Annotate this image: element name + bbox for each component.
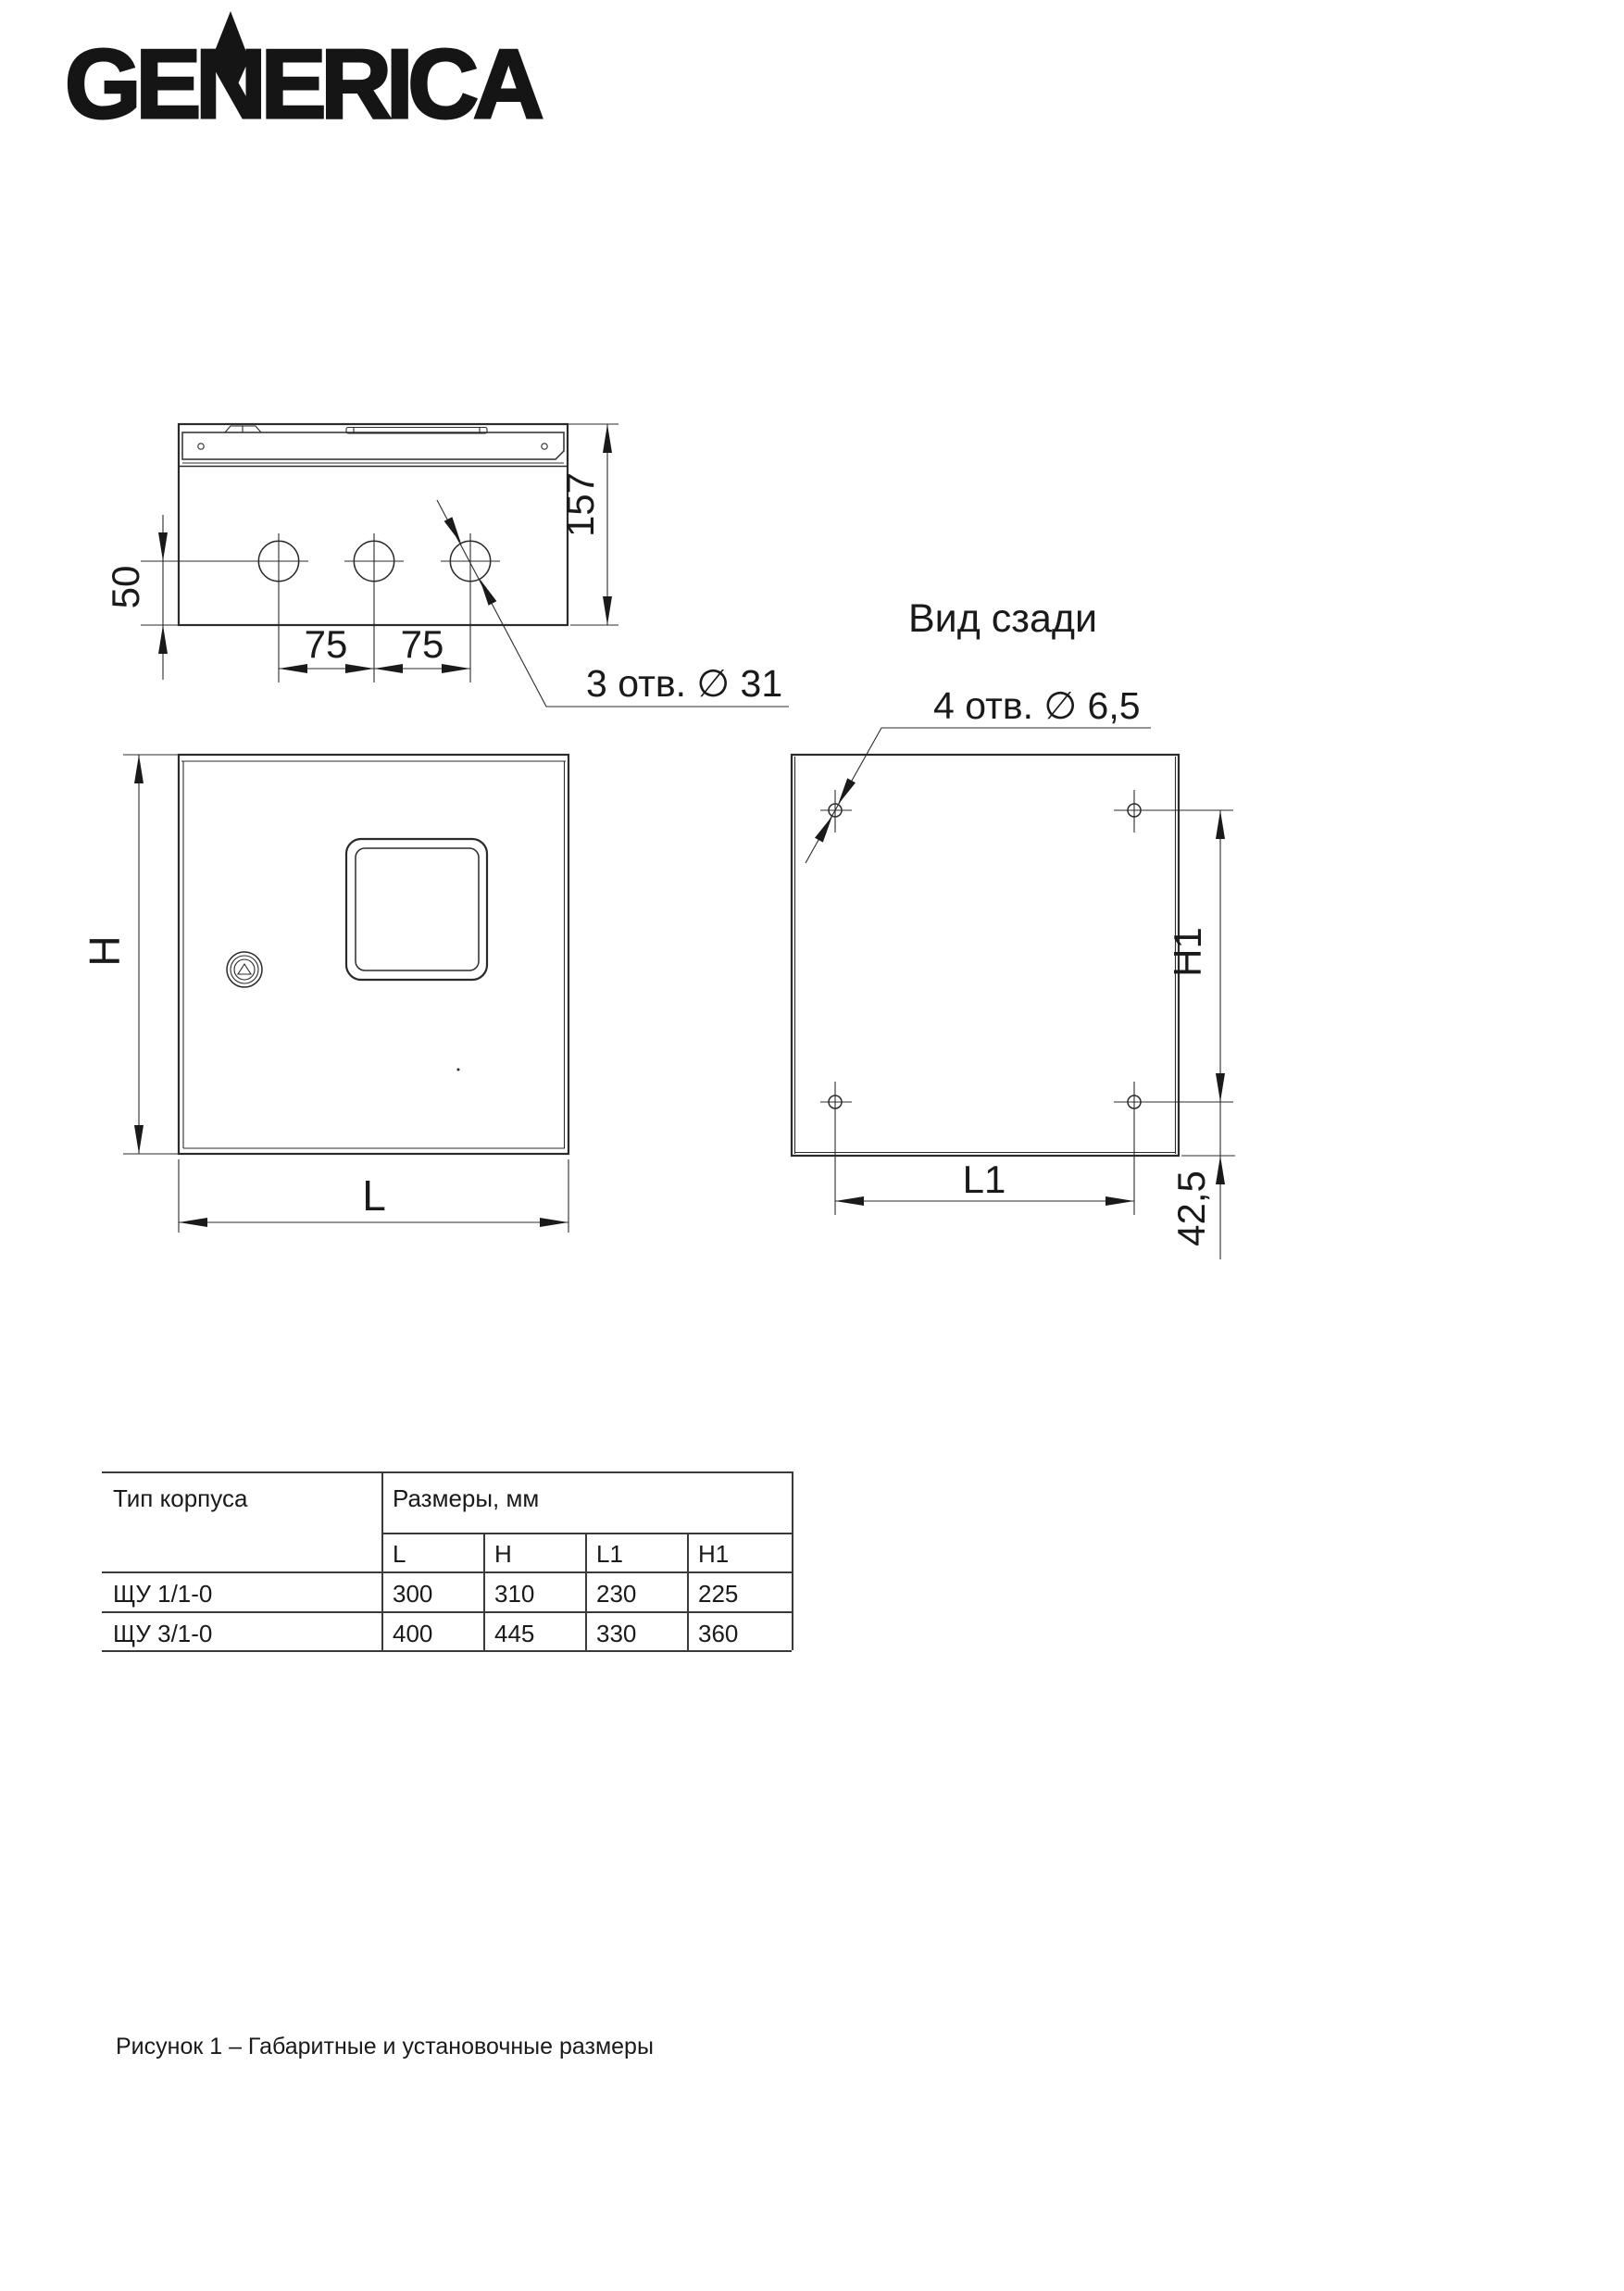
top-holes-label: 3 отв. ∅ 31 (586, 662, 782, 705)
rear-holes-label: 4 отв. ∅ 6,5 (933, 684, 1141, 727)
leader-3-holes: 3 отв. ∅ 31 (437, 500, 789, 707)
dimension-H1: H1 (1166, 810, 1225, 1102)
rear-view-outline (792, 755, 1179, 1156)
dim-42-5-label: 42,5 (1169, 1171, 1213, 1246)
table-row-type: ЩУ 3/1-0 (113, 1620, 212, 1648)
top-view: 157 50 75 75 3 отв. ∅ 31 (104, 424, 789, 707)
leader-4-holes: 4 отв. ∅ 6,5 (806, 684, 1151, 863)
figure-caption: Рисунок 1 – Габаритные и установочные ра… (116, 2034, 654, 2060)
table-cell: 230 (596, 1580, 636, 1609)
technical-drawing: 157 50 75 75 3 отв. ∅ 31 (0, 0, 1624, 1315)
table-col-H: H (494, 1540, 512, 1569)
dimension-L1: L1 (835, 1158, 1134, 1206)
dim-spacing2-label: 75 (401, 622, 444, 666)
dim-H-label: H (81, 935, 129, 966)
top-view-body-outline (179, 424, 568, 625)
rear-view: Вид сзади 4 отв. ∅ 6,5 (792, 596, 1235, 1259)
table-cell: 310 (494, 1580, 534, 1609)
dim-L-label: L (362, 1171, 386, 1220)
dim-depth-label: 157 (558, 472, 602, 537)
dim-spacing1-label: 75 (305, 622, 348, 666)
rear-view-title: Вид сзади (908, 596, 1097, 641)
top-view-lid-panel (182, 432, 564, 459)
table-cell: 225 (698, 1580, 738, 1609)
top-view-screw-left (198, 444, 204, 449)
dim-H1-label: H1 (1166, 927, 1209, 977)
table-cell: 300 (393, 1580, 432, 1609)
table-header-type: Тип корпуса (113, 1484, 247, 1513)
table-row-type: ЩУ 1/1-0 (113, 1580, 212, 1609)
dimension-50: 50 (104, 515, 179, 680)
rear-mounting-holes (820, 790, 1233, 1215)
top-view-screw-right (542, 444, 547, 449)
door-lock (227, 952, 262, 987)
dimension-H: H (81, 755, 179, 1154)
table-cell: 330 (596, 1620, 636, 1648)
dim-hole-offset-label: 50 (104, 566, 147, 609)
table-cell: 400 (393, 1620, 432, 1648)
table-col-L1: L1 (596, 1540, 623, 1569)
table-cell: 360 (698, 1620, 738, 1648)
meter-window-outer (346, 839, 487, 980)
dim-L1-label: L1 (963, 1158, 1006, 1201)
table-cell: 445 (494, 1620, 534, 1648)
meter-window-inner (356, 848, 479, 970)
front-view: H L (81, 755, 568, 1233)
table-col-H1: H1 (698, 1540, 729, 1569)
dimension-L: L (179, 1159, 568, 1233)
table-col-L: L (393, 1540, 406, 1569)
table-header-sizes: Размеры, мм (393, 1484, 539, 1513)
